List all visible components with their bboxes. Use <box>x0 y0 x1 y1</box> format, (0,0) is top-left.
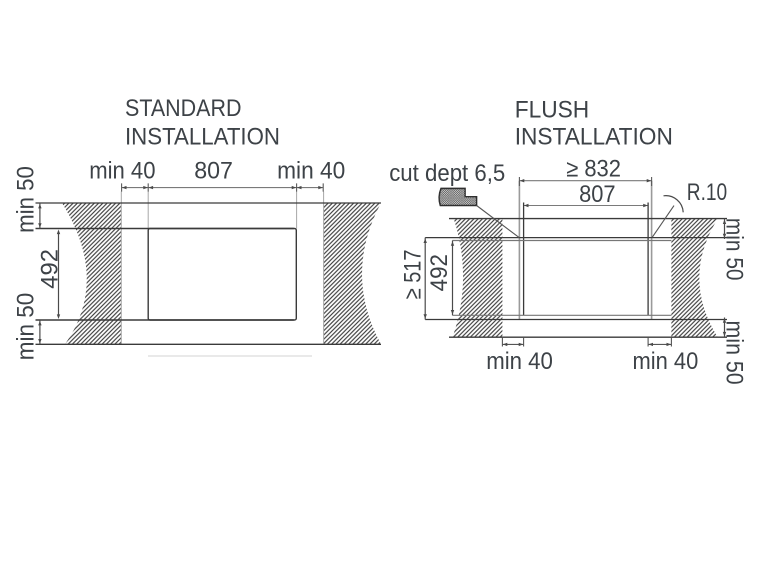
svg-text:min 40: min 40 <box>89 158 155 185</box>
svg-text:FLUSH: FLUSH <box>515 97 590 124</box>
svg-text:INSTALLATION: INSTALLATION <box>515 124 673 151</box>
svg-text:min 40: min 40 <box>486 348 553 375</box>
svg-text:min 50: min 50 <box>13 166 40 233</box>
svg-text:min 50: min 50 <box>13 293 40 361</box>
svg-text:INSTALLATION: INSTALLATION <box>125 124 280 151</box>
svg-text:min 50: min 50 <box>721 321 748 385</box>
svg-text:492: 492 <box>426 254 453 291</box>
svg-text:807: 807 <box>579 181 616 208</box>
svg-text:cut dept 6,5: cut dept 6,5 <box>389 160 505 187</box>
svg-text:492: 492 <box>37 249 64 289</box>
svg-text:min 50: min 50 <box>721 218 748 281</box>
svg-text:min 40: min 40 <box>277 158 345 185</box>
svg-text:min 40: min 40 <box>633 348 699 375</box>
svg-text:807: 807 <box>194 158 233 185</box>
svg-text:STANDARD: STANDARD <box>125 95 242 122</box>
svg-text:R.10: R.10 <box>687 179 727 206</box>
svg-text:≥ 832: ≥ 832 <box>566 155 621 182</box>
svg-text:≥ 517: ≥ 517 <box>400 250 427 300</box>
